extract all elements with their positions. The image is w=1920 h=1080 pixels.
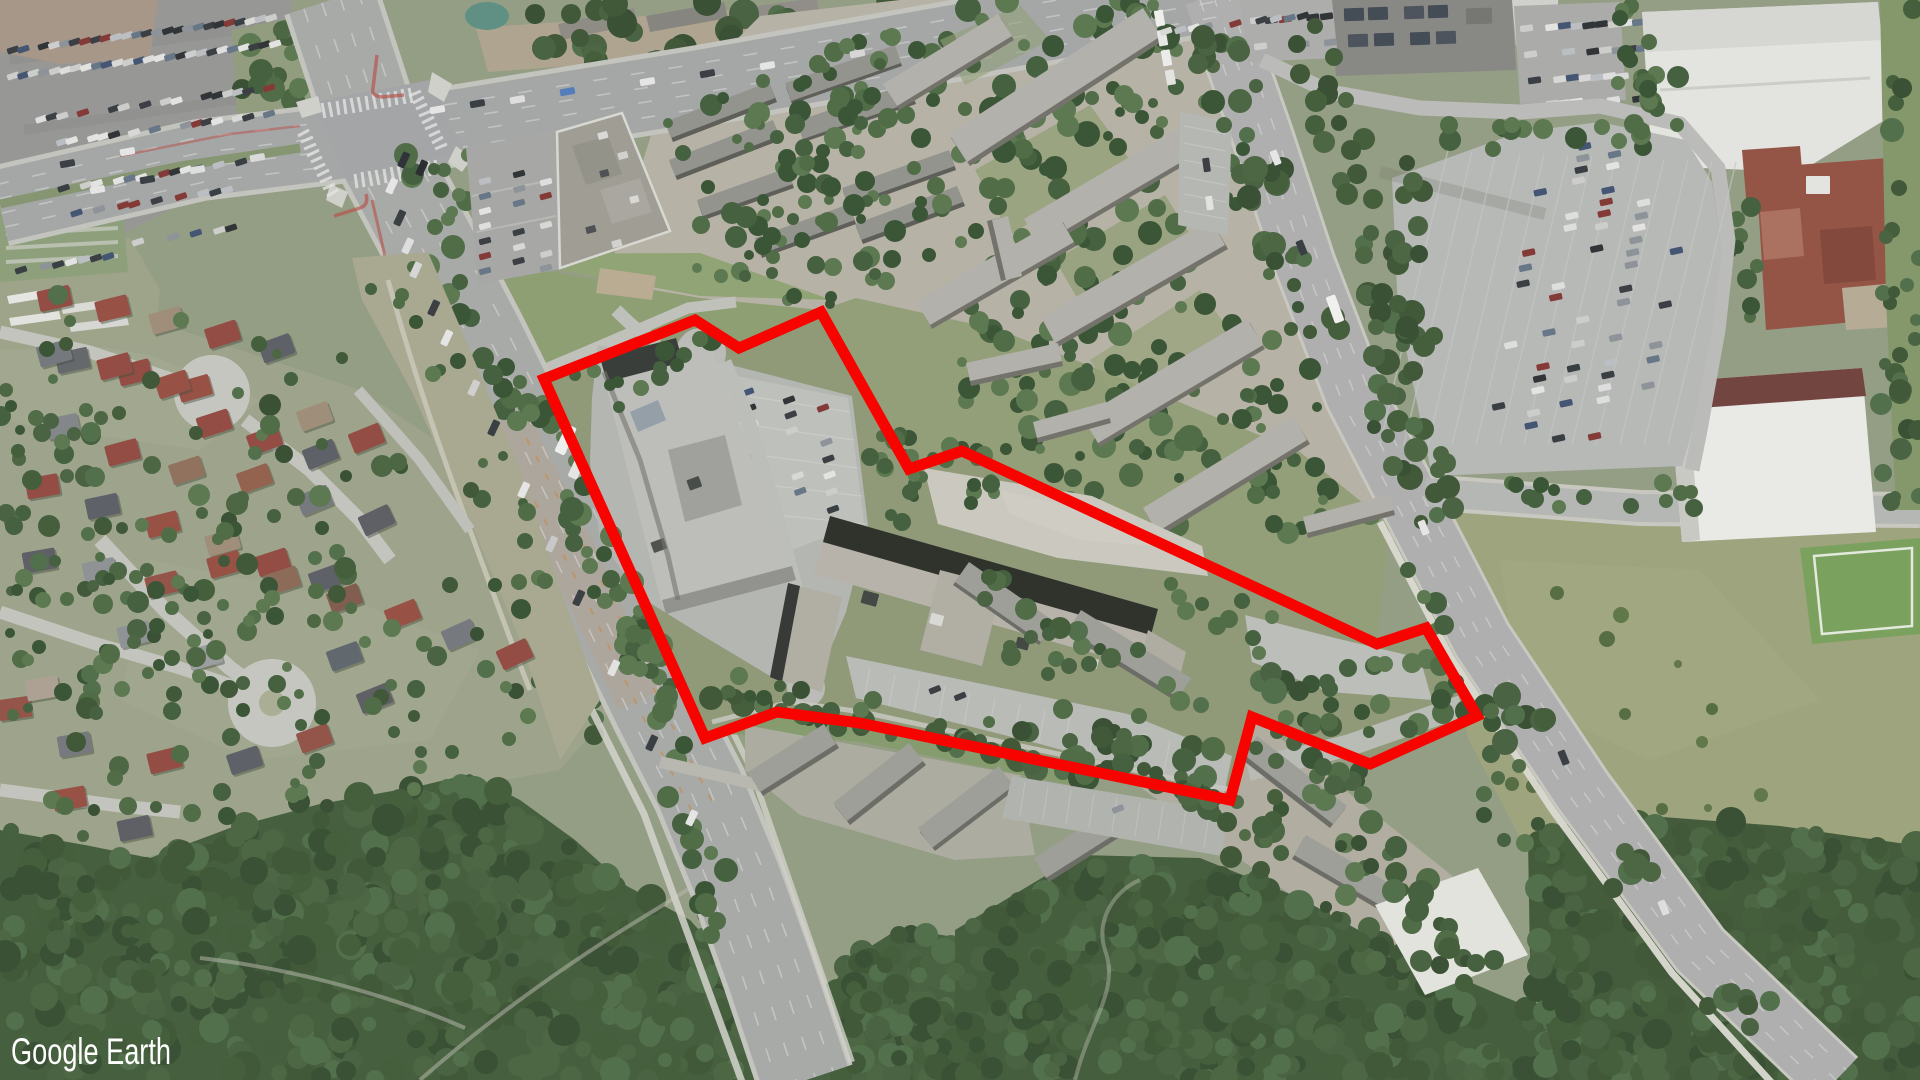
svg-text:Google Earth: Google Earth: [11, 1031, 171, 1072]
